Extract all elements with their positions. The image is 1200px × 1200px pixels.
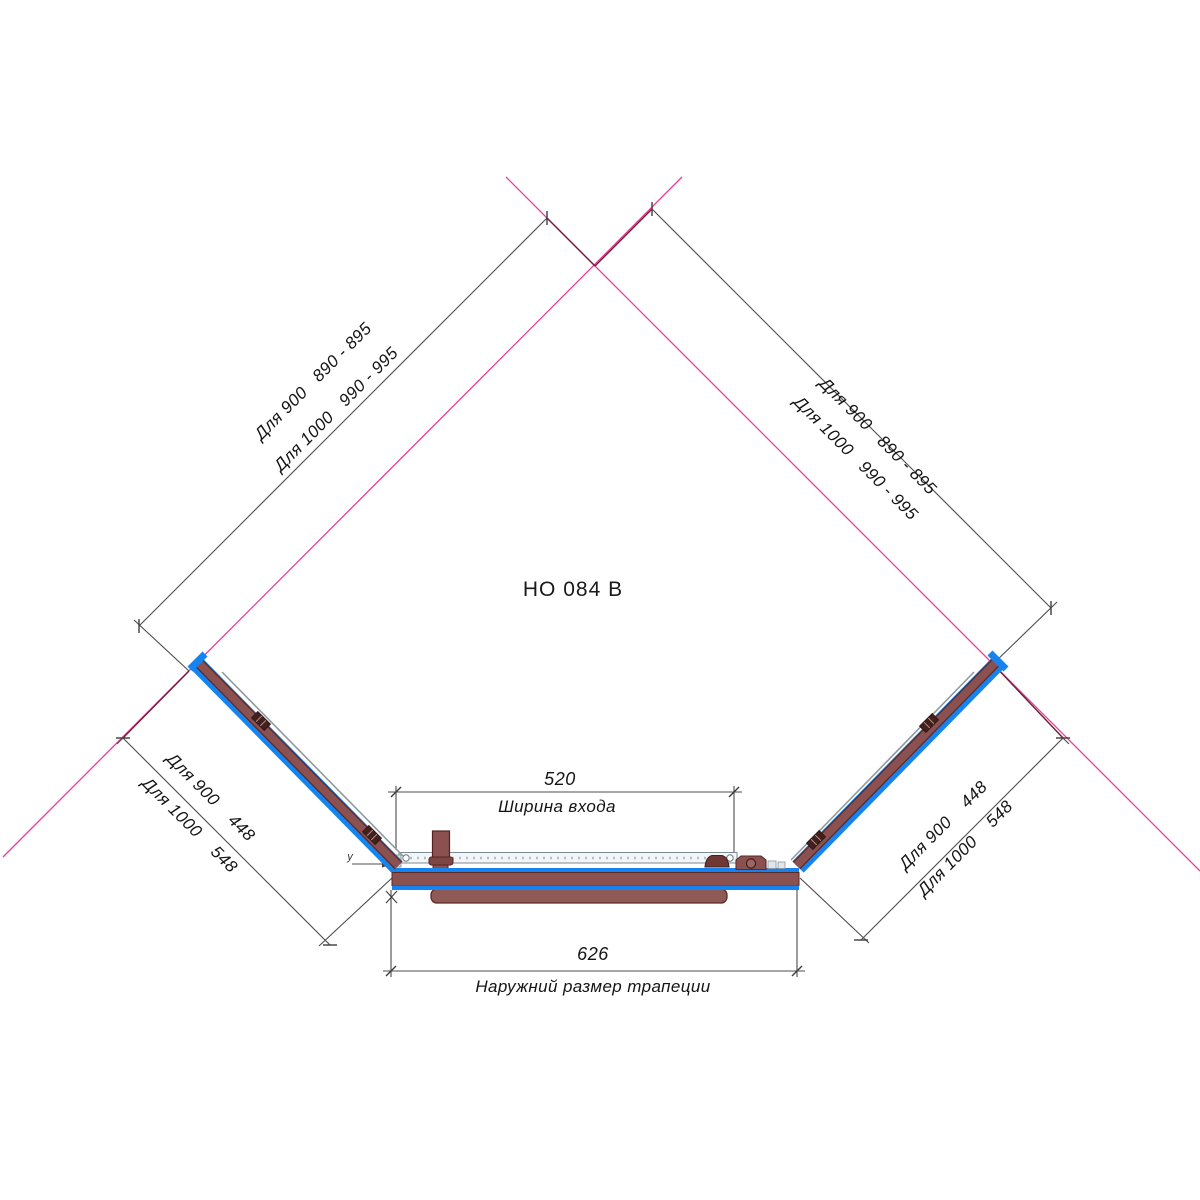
outer-width-label: Наружний размер трапеции bbox=[475, 977, 710, 996]
roller-icon bbox=[403, 855, 409, 861]
cad-drawing-canvas: Для 900 890 - 895 Для 1000 990 - 995 Для… bbox=[0, 0, 1200, 1200]
door-handle-knob bbox=[429, 831, 453, 865]
rail-profile bbox=[392, 873, 799, 886]
outer-width-value: 626 bbox=[577, 944, 609, 964]
guide-block bbox=[778, 862, 785, 869]
product-code-title: НО 084 В bbox=[523, 578, 623, 601]
bottom-rail bbox=[392, 870, 799, 888]
entry-width-value: 520 bbox=[544, 769, 576, 789]
entry-width-label: Ширина входа bbox=[498, 797, 616, 816]
drawing-page: Для 900 890 - 895 Для 1000 990 - 995 Для… bbox=[0, 0, 1200, 1200]
knob-cylinder bbox=[433, 831, 450, 859]
towel-bar-handle bbox=[431, 889, 727, 903]
knob-flange bbox=[429, 857, 453, 865]
door-stopper-knob bbox=[705, 856, 729, 868]
carriage-hole-icon bbox=[746, 859, 755, 868]
guide-block bbox=[768, 861, 776, 869]
